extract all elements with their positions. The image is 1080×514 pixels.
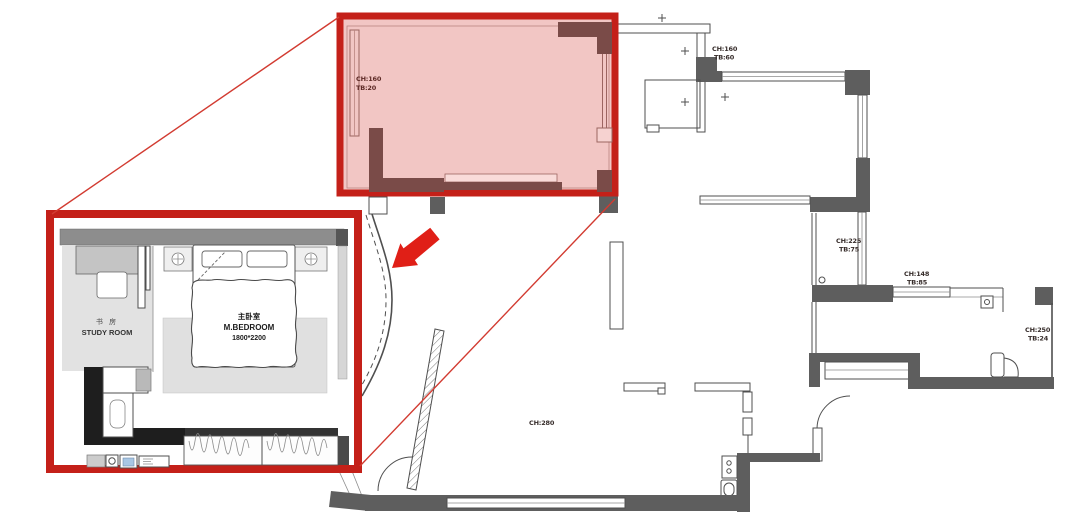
direction-arrow xyxy=(392,228,440,268)
annotation-text: CH:160 xyxy=(712,45,738,53)
study-room-label-en: STUDY ROOM xyxy=(82,328,133,337)
lamp-icon xyxy=(172,253,184,265)
bottom-wall xyxy=(329,471,750,511)
inset-top-wall xyxy=(60,229,344,245)
annotation-text: TB:85 xyxy=(907,279,928,287)
floorplan-image: CH:160 TB:60 CH:225 TB:75 CH:148 TB:85 C… xyxy=(0,0,1080,514)
desk xyxy=(76,246,144,274)
door-arc xyxy=(817,396,850,428)
annotation-balcony-top: CH:148 TB:85 xyxy=(904,270,930,287)
annotation-text: TB:60 xyxy=(714,54,735,62)
master-bedroom: 主卧室 M.BEDROOM 1800*2200 xyxy=(163,245,327,393)
shelf xyxy=(146,246,150,290)
foyer-walls xyxy=(618,24,870,132)
annotation-text: CH:250 xyxy=(1025,326,1051,334)
wardrobe xyxy=(184,436,338,465)
annotation-text: TB:75 xyxy=(839,246,860,254)
annotation-foyer: CH:160 TB:60 xyxy=(712,45,738,62)
study-room-label-cn: 书 房 xyxy=(96,317,118,326)
detail-inset: 书 房 STUDY ROOM 主卧室 M.BEDROOM 1800*2200 xyxy=(50,214,358,469)
annotation-text: TB:24 xyxy=(1028,335,1049,343)
annotation-living-room: CH:280 xyxy=(529,419,555,427)
annotation-text: CH:160 xyxy=(356,75,382,83)
toilet-fixture xyxy=(991,353,1004,377)
chair xyxy=(97,272,127,298)
sink-fixture xyxy=(722,456,737,478)
pillow xyxy=(247,251,287,267)
wall-fixture-icon xyxy=(981,296,993,308)
highlighted-room-overlay: CH:160 TB:20 xyxy=(340,16,615,193)
bed-size-label: 1800*2200 xyxy=(232,335,266,342)
lamp-icon xyxy=(305,253,317,265)
bedroom-label-cn: 主卧室 xyxy=(238,311,261,321)
annotation-text: CH:225 xyxy=(836,237,862,245)
toilet-lid xyxy=(1004,358,1018,377)
annotation-corridor: CH:225 TB:75 xyxy=(836,237,862,254)
balcony-walls xyxy=(812,285,1054,461)
floorplan-svg: CH:160 TB:60 CH:225 TB:75 CH:148 TB:85 C… xyxy=(0,0,1080,514)
bedroom-label-en: M.BEDROOM xyxy=(224,323,275,332)
annotation-balcony-right: CH:250 TB:24 xyxy=(1025,326,1051,343)
leader-line-top xyxy=(52,17,339,214)
inset-corner-block xyxy=(336,229,348,246)
annotation-text: CH:148 xyxy=(904,270,930,278)
sink-fixture xyxy=(106,455,118,467)
annotation-text: TB:20 xyxy=(356,84,377,92)
pillow xyxy=(202,251,242,267)
shelf xyxy=(138,246,145,308)
hatched-wall xyxy=(407,329,444,490)
right-wall-windows xyxy=(700,95,870,285)
leader-line-bottom xyxy=(360,199,615,466)
inset-right-wall xyxy=(338,246,347,379)
doorbell-icon xyxy=(819,277,825,283)
